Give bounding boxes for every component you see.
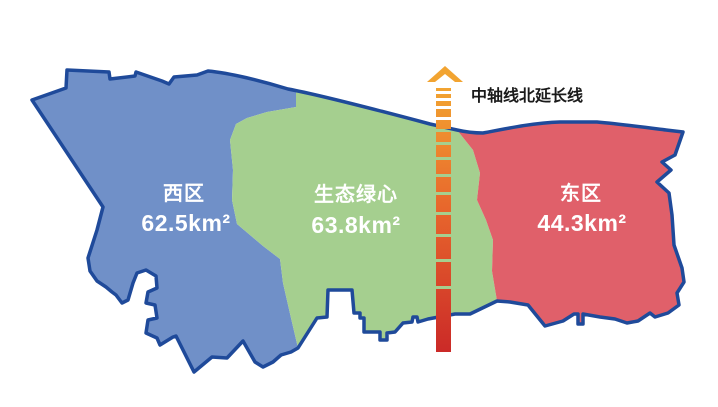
central-axis-label: 中轴线北延长线 bbox=[471, 89, 583, 105]
region-west-area: 62.5km² bbox=[141, 212, 230, 235]
region-east-name: 东区 bbox=[560, 184, 602, 204]
region-green-heart-area: 63.8km² bbox=[311, 214, 400, 237]
region-west-name: 西区 bbox=[163, 184, 205, 204]
district-map-infographic: 西区 62.5km² 生态绿心 63.8km² 东区 44.3km² 中轴线北延… bbox=[0, 0, 718, 407]
region-green-heart-name: 生态绿心 bbox=[314, 185, 398, 205]
north-arrow-icon bbox=[427, 66, 463, 82]
region-east-area: 44.3km² bbox=[537, 212, 626, 235]
